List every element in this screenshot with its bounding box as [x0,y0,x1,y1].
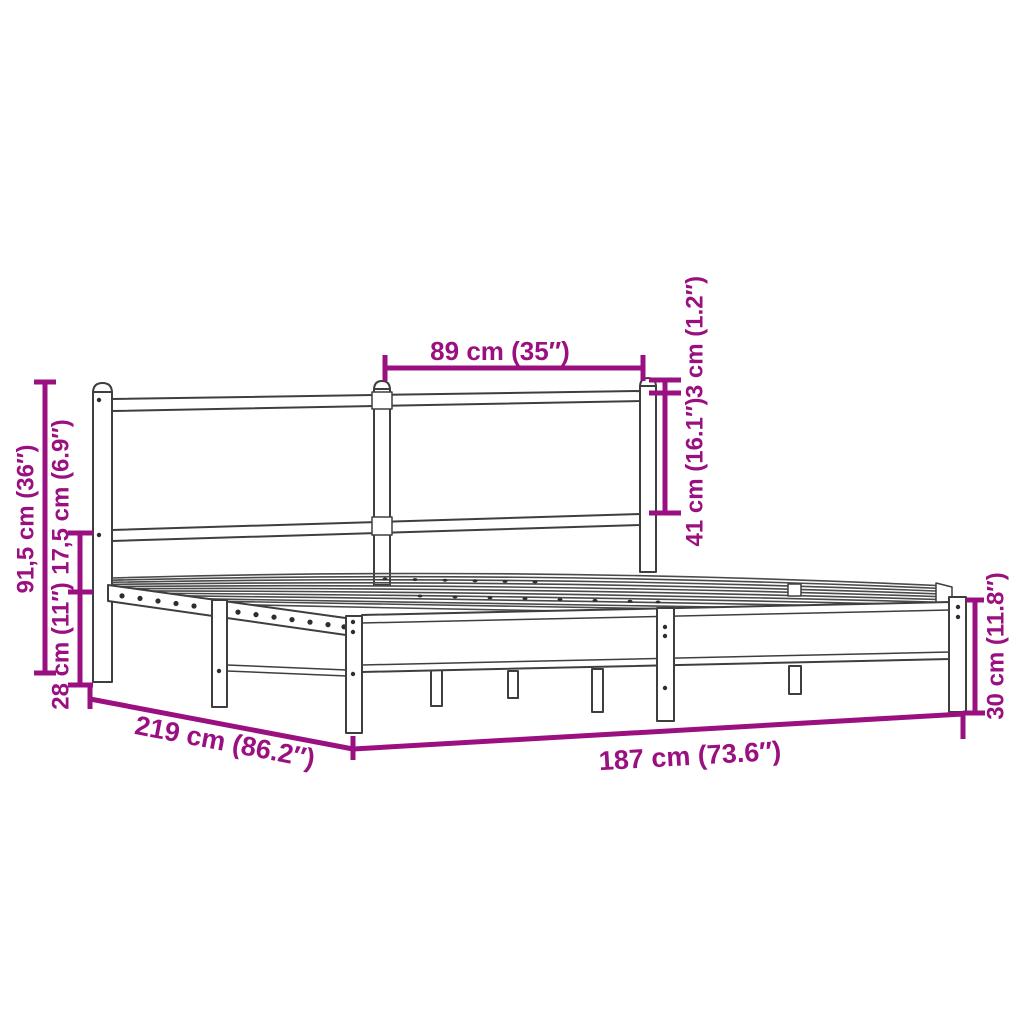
bracket-screw [351,630,355,634]
dim-label-headboard-width: 89 cm (35″) [430,336,570,366]
headboard-right-post [640,386,656,572]
slat-screw [473,579,478,582]
rail-hole [253,612,258,617]
dim-label-headboard-panel-height: 41 cm (16.1″) [682,398,709,547]
slat-screw [383,578,388,581]
dim-footboard-height: 30 cm (11.8″) [963,572,1010,720]
slat-screw [488,596,493,599]
rail-hole [191,603,196,608]
rail-hole [307,620,312,625]
bracket-screw [351,620,355,624]
rail-hole [173,601,178,606]
diagram-canvas: 89 cm (35″) 3 cm (1.2″) 41 cm (16.1″) 91… [0,0,1024,1024]
center-rail-bracket [788,584,801,596]
rail-hole [235,610,240,615]
slat-screw [413,578,418,581]
slat-screw [443,579,448,582]
slat-screw [533,581,538,584]
headboard-left-post [93,392,112,682]
side-rail-perforated [108,585,360,637]
post-screw [97,398,101,402]
stretcher-bar-top [227,665,347,670]
dim-rail-to-base: 17,5 cm (6.9″) [48,419,94,592]
post-screw [97,533,101,537]
slat-screw [523,597,528,600]
dim-label-overall-height: 91,5 cm (36″) [13,445,40,594]
bracket-screw [663,634,667,638]
slat-screw [503,580,508,583]
slat-screw [558,598,563,601]
bed-dimension-diagram: 89 cm (35″) 3 cm (1.2″) 41 cm (16.1″) 91… [0,0,1024,1024]
bed-frame-drawing [93,378,966,733]
dim-label-overall-length: 219 cm (86.2″) [133,710,318,774]
leg-screw [663,686,667,690]
dim-label-rail-to-base-gap: 17,5 cm (6.9″) [48,419,75,575]
dim-label-headboard-top-gap: 3 cm (1.2″) [682,276,709,398]
dim-base-length: 187 cm (73.6″) [353,714,963,776]
dim-label-footboard-height: 30 cm (11.8″) [983,572,1010,720]
front-rail-assembly [362,597,966,721]
slat-screw [656,601,661,604]
rail-hole [155,598,160,603]
foot-end-post [949,597,966,712]
bracket-screw [663,625,667,629]
slat-screw [628,600,633,603]
support-leg [592,669,603,712]
rail-hole [119,593,124,598]
center-post-top-clamp [372,392,392,409]
rail-hole [289,617,294,622]
stretcher-bar-bottom [227,671,347,676]
dim-label-under-bed-clearance: 28 cm (11″) [48,582,75,710]
dim-headboard-width: 89 cm (35″) [385,336,643,381]
support-leg [789,666,801,694]
slat-screw [593,599,598,602]
leg-screw [351,672,355,676]
leg-screw [217,669,221,673]
dim-headboard-right: 3 cm (1.2″) 41 cm (16.1″) [649,276,709,547]
dim-label-base-length: 187 cm (73.6″) [598,736,782,776]
headboard-center-post [374,389,390,585]
rail-hole [137,596,142,601]
rail-hole [271,615,276,620]
dim-under-bed-clearance: 28 cm (11″) [48,582,94,710]
bracket-screw [956,615,960,619]
support-leg [508,671,518,698]
support-leg [431,670,442,706]
mid-left-leg [212,600,227,707]
slat-screw [453,595,458,598]
bracket-screw [956,605,960,609]
slat-screw [418,595,423,598]
center-post-mid-clamp [372,517,392,535]
rail-hole [325,622,330,627]
